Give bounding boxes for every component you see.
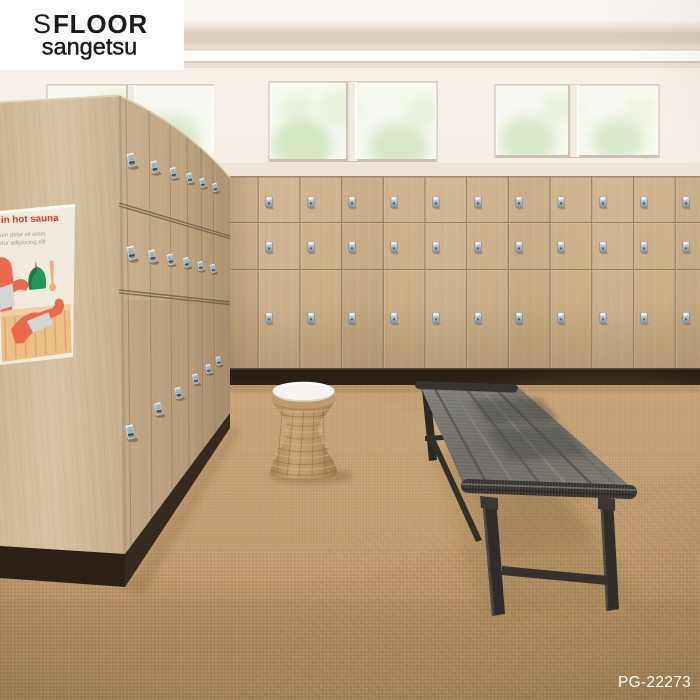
svg-text:PG-22273: PG-22273 [618, 674, 691, 691]
svg-text:sangetsu: sangetsu [42, 34, 137, 60]
